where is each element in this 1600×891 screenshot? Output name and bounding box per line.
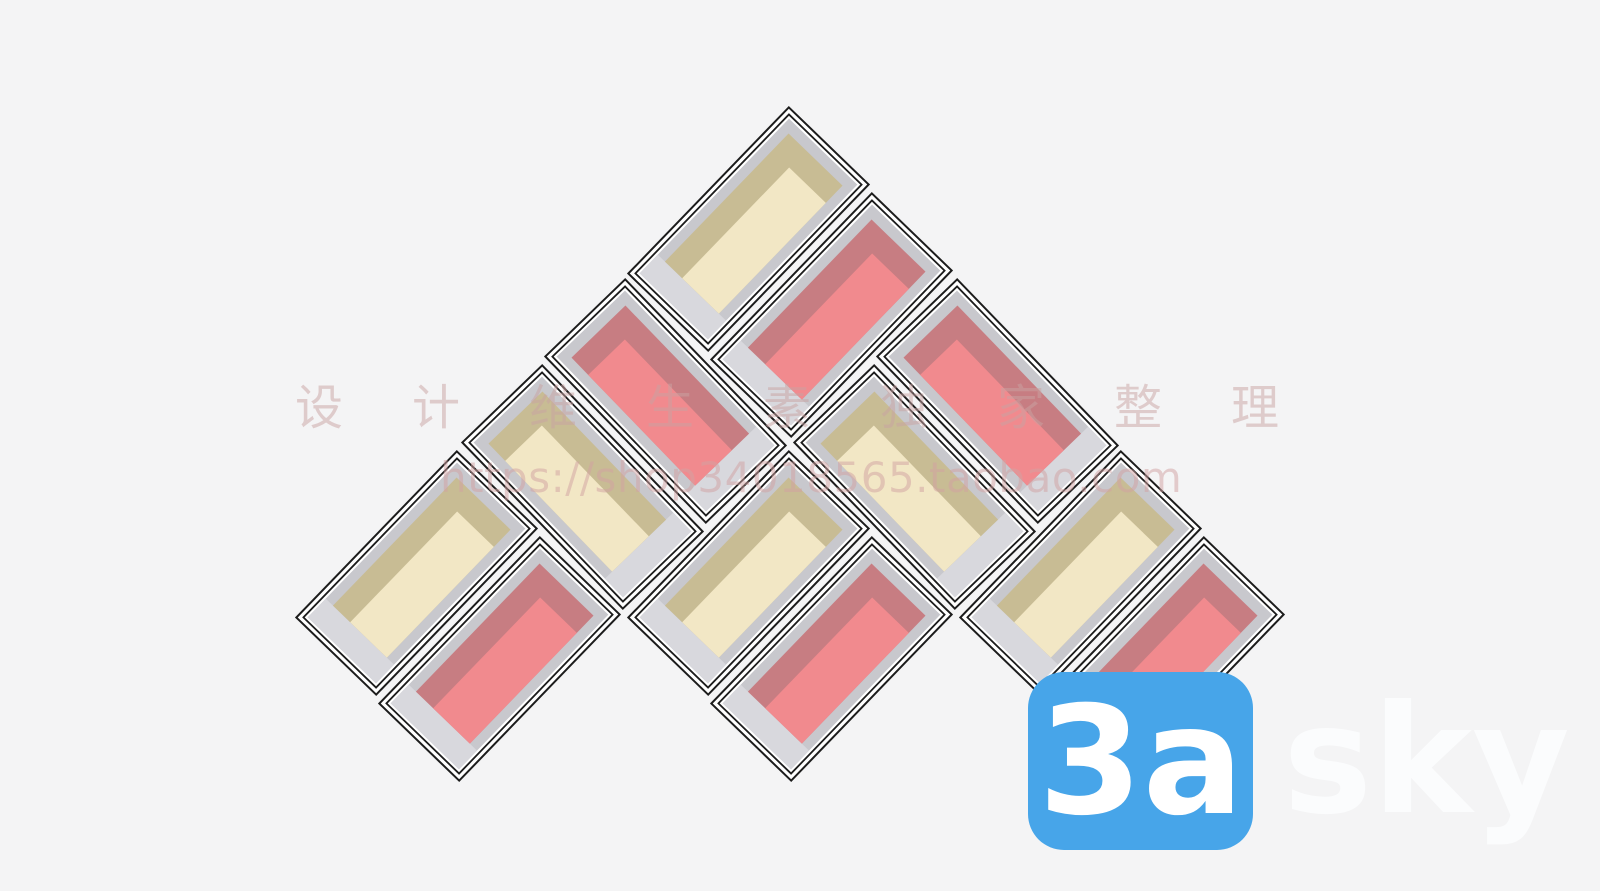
logo-badge-text: 3a <box>1038 675 1244 849</box>
logo-suffix-text: sky <box>1283 674 1570 848</box>
watermark-url-text: https://shop34018565.taobao.com <box>440 453 1182 502</box>
watermark-cn-text: 设计维生素独家整理 <box>295 380 1348 436</box>
shelf-illustration: 设计维生素独家整理 https://shop34018565.taobao.co… <box>0 0 1600 891</box>
illustration-stage: 设计维生素独家整理 https://shop34018565.taobao.co… <box>0 0 1600 891</box>
logo: 3a sky <box>1028 672 1570 850</box>
